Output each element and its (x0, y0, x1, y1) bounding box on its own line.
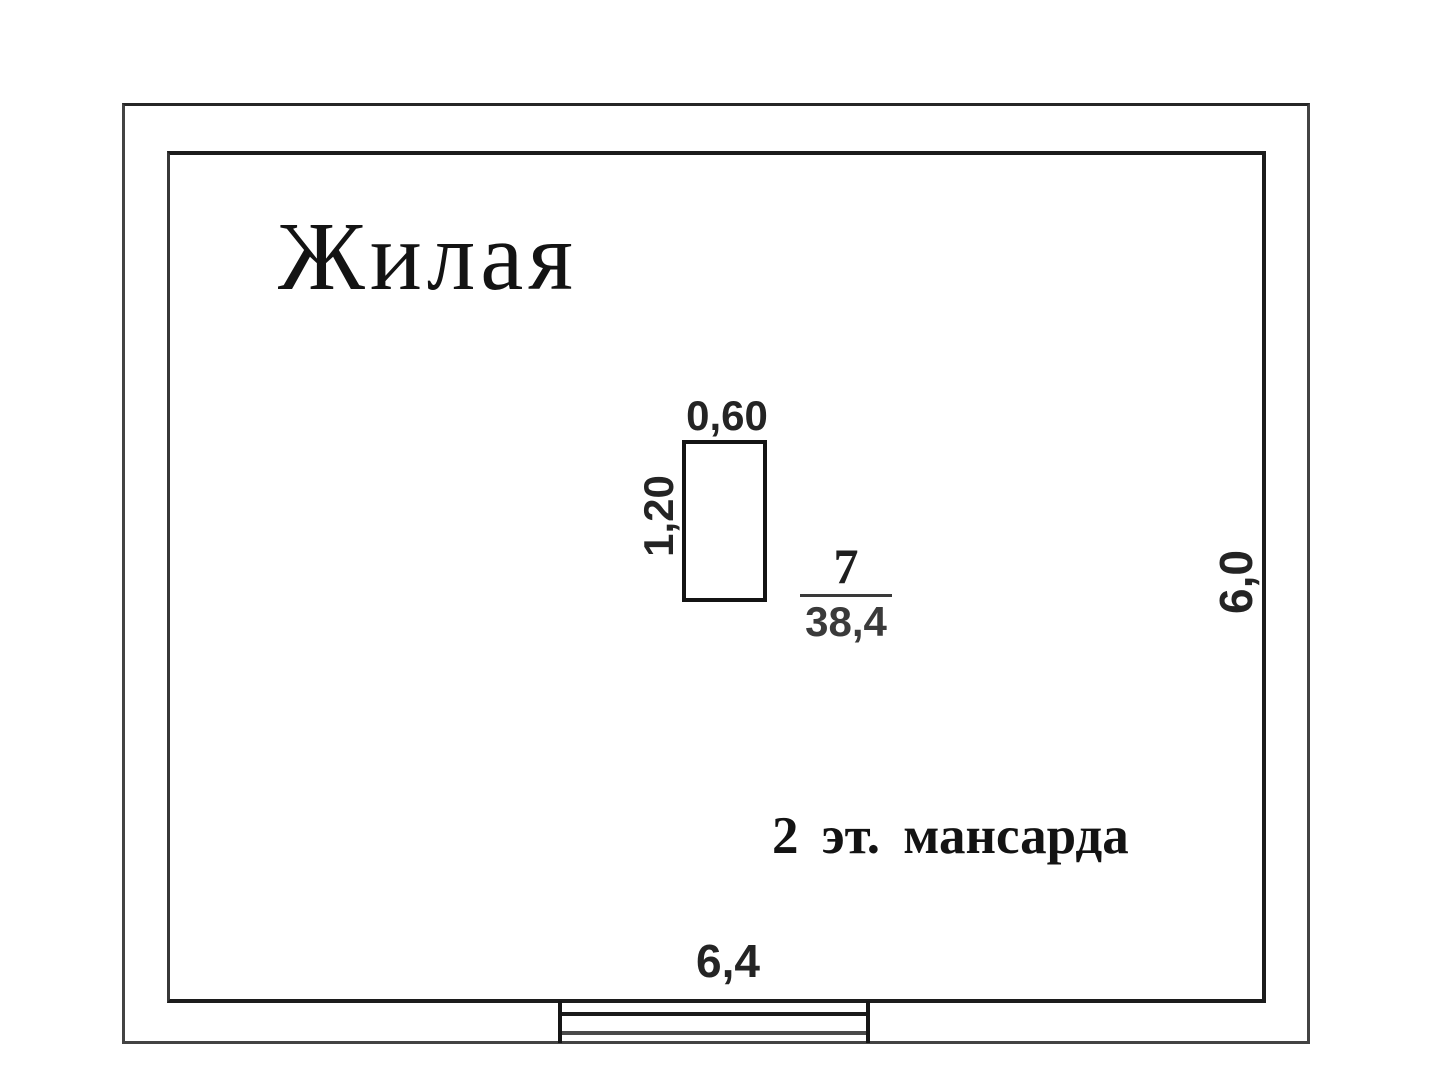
stove-height-dimension: 1,20 (638, 475, 680, 557)
window-symbol (558, 1001, 870, 1043)
room-name-label: Жилая (278, 208, 578, 305)
right-height-dimension: 6,0 (1213, 550, 1259, 614)
window-glazing-line-1 (562, 1012, 866, 1016)
window-glazing-line-2 (562, 1031, 866, 1035)
bottom-width-dimension: 6,4 (696, 938, 760, 984)
room-number-label: 7 (800, 541, 892, 597)
room-area-label: 38,4 (800, 597, 892, 643)
stove-width-dimension: 0,60 (686, 395, 768, 437)
stove-rectangle (682, 440, 767, 602)
room-number-area: 7 38,4 (800, 541, 892, 643)
floor-plan: Жилая 0,60 1,20 7 38,4 2 эт. мансарда 6,… (0, 0, 1441, 1080)
floor-note-label: 2 эт. мансарда (772, 810, 1129, 863)
